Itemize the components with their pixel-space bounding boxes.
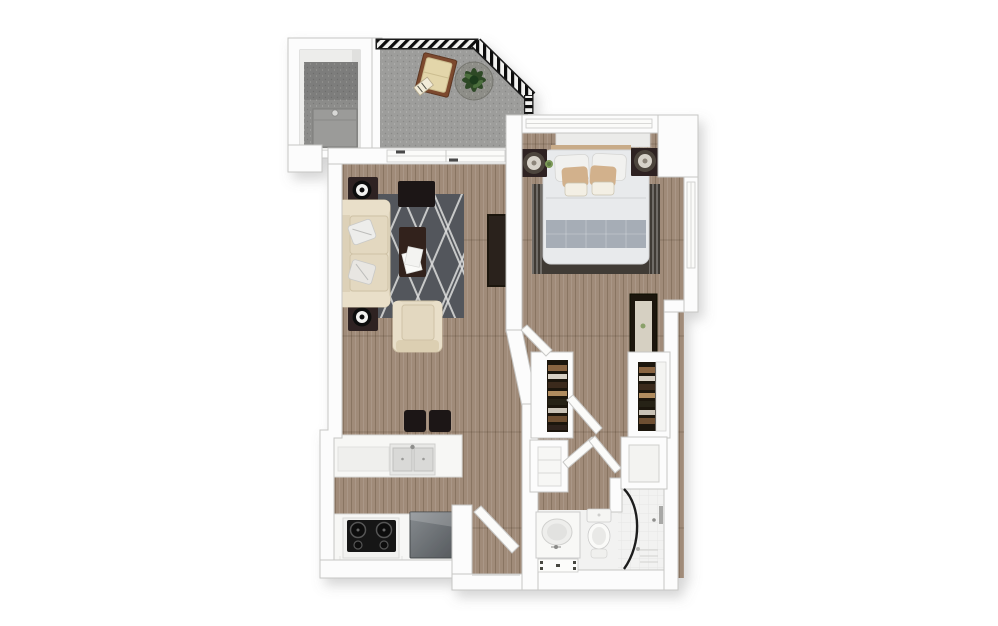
- accent-pillow: [592, 182, 614, 195]
- side-table-top: [348, 177, 378, 203]
- floor-plan-image: [0, 0, 998, 626]
- top-right-corner-block: [658, 115, 698, 177]
- cabinet-front: [338, 447, 389, 471]
- double-sink: [390, 444, 435, 475]
- shower-floor-tiles: [618, 487, 664, 570]
- lamp-right: [634, 150, 656, 172]
- washer-knob: [332, 110, 338, 116]
- door-handle: [449, 159, 458, 162]
- utility-step-wall: [288, 145, 322, 172]
- door-handle: [396, 151, 405, 154]
- closet-door-face: [656, 362, 666, 431]
- bar-stool-right: [429, 410, 451, 432]
- bath-mat: [538, 559, 578, 572]
- kitchen-faucet: [410, 445, 414, 449]
- accent-pillow: [565, 183, 587, 196]
- dresser-mirror: [630, 294, 657, 361]
- blanket: [546, 220, 646, 248]
- lamp-left: [523, 152, 545, 174]
- bar-stool-left: [404, 410, 426, 432]
- shower-head: [652, 518, 656, 522]
- vanity-sink: [536, 512, 580, 558]
- kitchen-bottom-wall: [320, 560, 458, 578]
- floor-plan-page: [0, 0, 998, 626]
- linen-shelf-left: [530, 440, 568, 492]
- sofa: [338, 200, 390, 307]
- living-bedroom-wall: [506, 115, 522, 332]
- shower-fixture: [659, 506, 663, 524]
- potted-plant: [455, 62, 493, 100]
- bathroom-bottom-wall: [536, 570, 678, 590]
- bedroom-window-top: [526, 119, 652, 128]
- plant-leaves: [462, 68, 486, 92]
- sofa-arm-top: [338, 200, 390, 215]
- washer-unit: [313, 109, 357, 147]
- burner: [354, 541, 362, 549]
- sliding-glass-door: [387, 150, 505, 162]
- floor-plan: [288, 38, 698, 590]
- kitchen-entry-wall: [452, 505, 472, 578]
- burner: [380, 541, 388, 549]
- bedroom: [521, 128, 660, 274]
- linen-shelf-right: [621, 437, 667, 489]
- dresser-decor: [641, 324, 646, 329]
- bedroom-window-right: [687, 182, 695, 268]
- armchair: [393, 301, 442, 352]
- rug-fringe-left: [532, 184, 543, 274]
- closet-right: [628, 352, 670, 438]
- closet-left: [531, 352, 573, 438]
- refrigerator: [410, 512, 454, 558]
- coffee-table: [399, 227, 426, 277]
- shower-drain: [636, 547, 640, 551]
- utility-carpet-shadow: [304, 62, 358, 100]
- sofa-arm-bottom: [338, 292, 390, 307]
- tv-console: [487, 214, 507, 287]
- media-bench: [398, 181, 435, 207]
- rug-fringe-right: [649, 184, 660, 274]
- shower-stub-wall: [610, 478, 622, 512]
- stove-cooktop: [343, 518, 399, 558]
- peninsula-counter: [333, 435, 462, 477]
